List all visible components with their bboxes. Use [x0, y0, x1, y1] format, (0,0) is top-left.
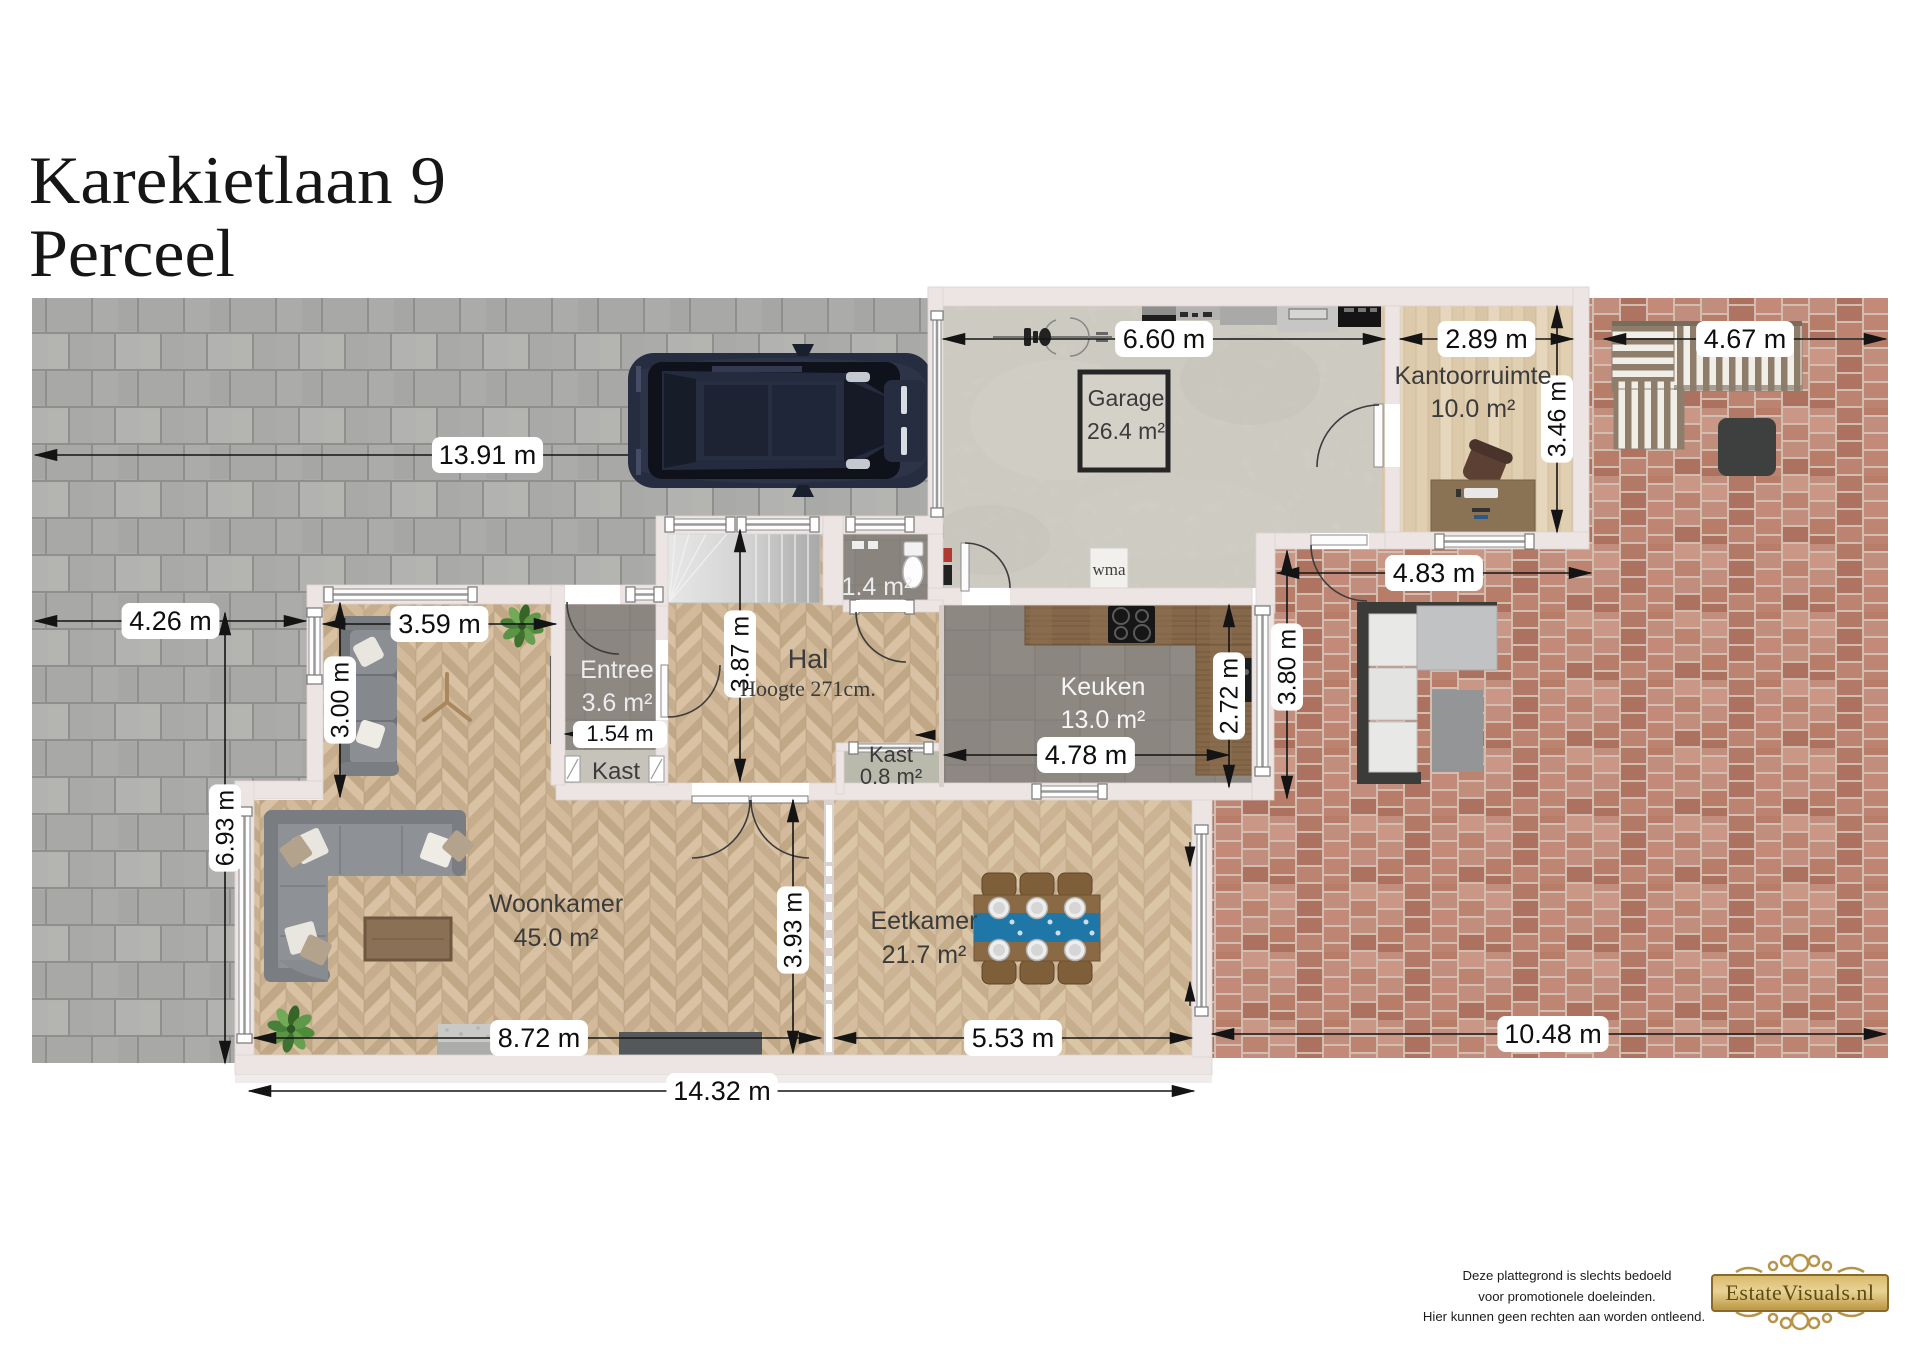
svg-text:Hier kunnen geen rechten aan w: Hier kunnen geen rechten aan worden ontl…: [1423, 1309, 1705, 1324]
svg-text:3.6 m²: 3.6 m²: [582, 689, 653, 717]
svg-text:3.93 m: 3.93 m: [780, 892, 808, 968]
svg-text:Kantoorruimte: Kantoorruimte: [1394, 362, 1551, 390]
svg-text:wma: wma: [1092, 560, 1126, 579]
svg-text:Keuken: Keuken: [1061, 673, 1146, 701]
svg-text:10.0 m²: 10.0 m²: [1431, 395, 1516, 423]
svg-text:3.00 m: 3.00 m: [327, 662, 355, 738]
svg-text:6.93 m: 6.93 m: [212, 790, 240, 866]
svg-text:EstateVisuals.nl: EstateVisuals.nl: [1725, 1280, 1874, 1305]
svg-text:Garage: Garage: [1088, 385, 1165, 411]
svg-text:Deze plattegrond is slechts be: Deze plattegrond is slechts bedoeld: [1463, 1268, 1672, 1283]
svg-text:4.67 m: 4.67 m: [1704, 324, 1787, 354]
svg-text:5.53 m: 5.53 m: [972, 1023, 1055, 1053]
svg-text:3.46 m: 3.46 m: [1544, 381, 1572, 457]
svg-text:Kast: Kast: [592, 758, 640, 785]
svg-text:Perceel: Perceel: [29, 215, 235, 291]
svg-text:13.91 m: 13.91 m: [439, 440, 537, 470]
svg-text:1.4 m²: 1.4 m²: [842, 573, 913, 601]
svg-text:2.72 m: 2.72 m: [1216, 658, 1244, 734]
svg-text:Entree: Entree: [580, 656, 654, 684]
svg-text:6.60 m: 6.60 m: [1123, 324, 1206, 354]
svg-text:1.54 m: 1.54 m: [586, 721, 653, 746]
svg-text:4.26 m: 4.26 m: [129, 606, 212, 636]
svg-text:0.8 m²: 0.8 m²: [860, 764, 922, 789]
svg-text:26.4 m²: 26.4 m²: [1087, 418, 1165, 444]
svg-text:Eetkamer: Eetkamer: [871, 907, 978, 935]
svg-text:14.32 m: 14.32 m: [673, 1076, 771, 1106]
svg-text:Karekietlaan 9: Karekietlaan 9: [29, 142, 446, 218]
svg-text:8.72 m: 8.72 m: [498, 1023, 581, 1053]
svg-text:2.89 m: 2.89 m: [1445, 324, 1528, 354]
svg-text:13.0 m²: 13.0 m²: [1061, 706, 1146, 734]
svg-text:45.0 m²: 45.0 m²: [514, 924, 599, 952]
svg-text:Hal: Hal: [788, 644, 829, 674]
svg-text:4.83 m: 4.83 m: [1393, 558, 1476, 588]
svg-text:voor promotionele doeleinden.: voor promotionele doeleinden.: [1478, 1289, 1655, 1304]
svg-text:21.7 m²: 21.7 m²: [882, 941, 967, 969]
svg-text:10.48 m: 10.48 m: [1504, 1019, 1602, 1049]
svg-text:4.78 m: 4.78 m: [1045, 740, 1128, 770]
svg-text:Woonkamer: Woonkamer: [489, 890, 623, 918]
svg-text:3.80 m: 3.80 m: [1274, 629, 1302, 705]
svg-text:Hoogte 271cm.: Hoogte 271cm.: [740, 676, 876, 701]
svg-text:3.59 m: 3.59 m: [398, 609, 481, 639]
